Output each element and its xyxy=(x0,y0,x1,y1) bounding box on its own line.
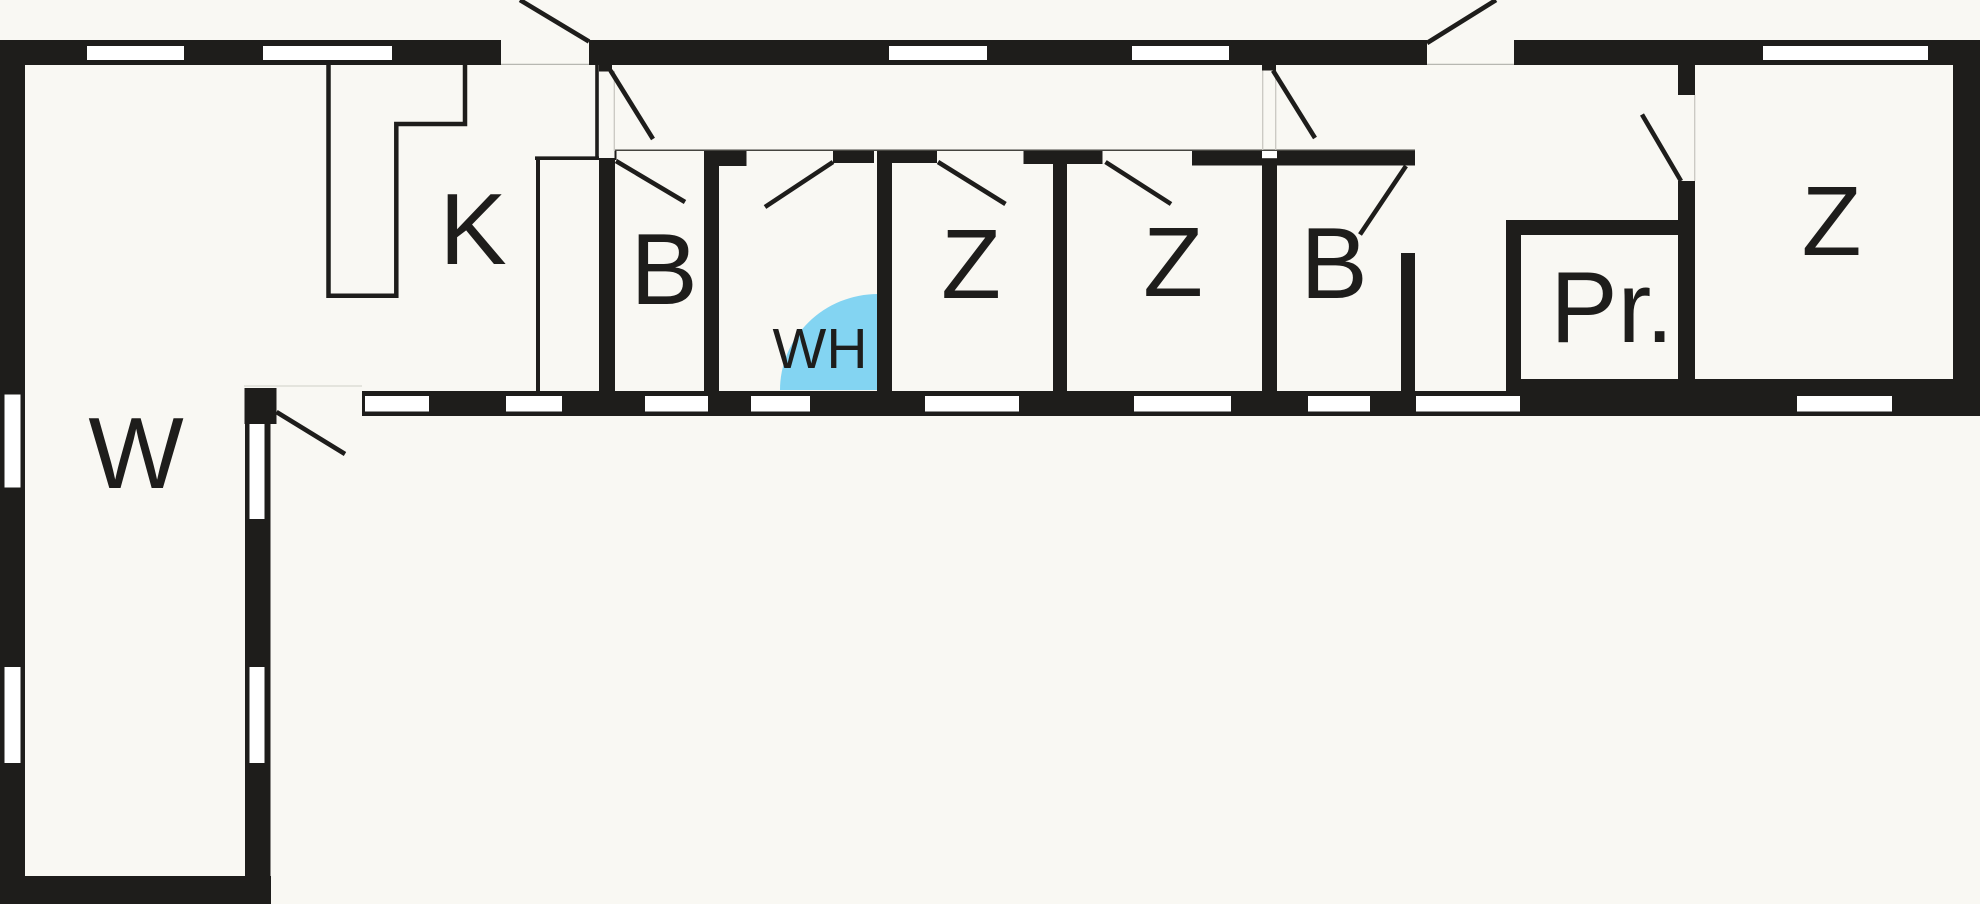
svg-text:Z: Z xyxy=(941,209,1001,319)
svg-text:B: B xyxy=(630,214,697,326)
svg-text:W: W xyxy=(88,398,183,510)
svg-text:Z: Z xyxy=(1802,166,1862,276)
svg-text:WH: WH xyxy=(773,317,868,381)
svg-text:Z: Z xyxy=(1143,207,1203,317)
svg-text:K: K xyxy=(439,174,506,286)
svg-text:Pr.: Pr. xyxy=(1550,252,1674,364)
svg-text:B: B xyxy=(1300,208,1367,320)
